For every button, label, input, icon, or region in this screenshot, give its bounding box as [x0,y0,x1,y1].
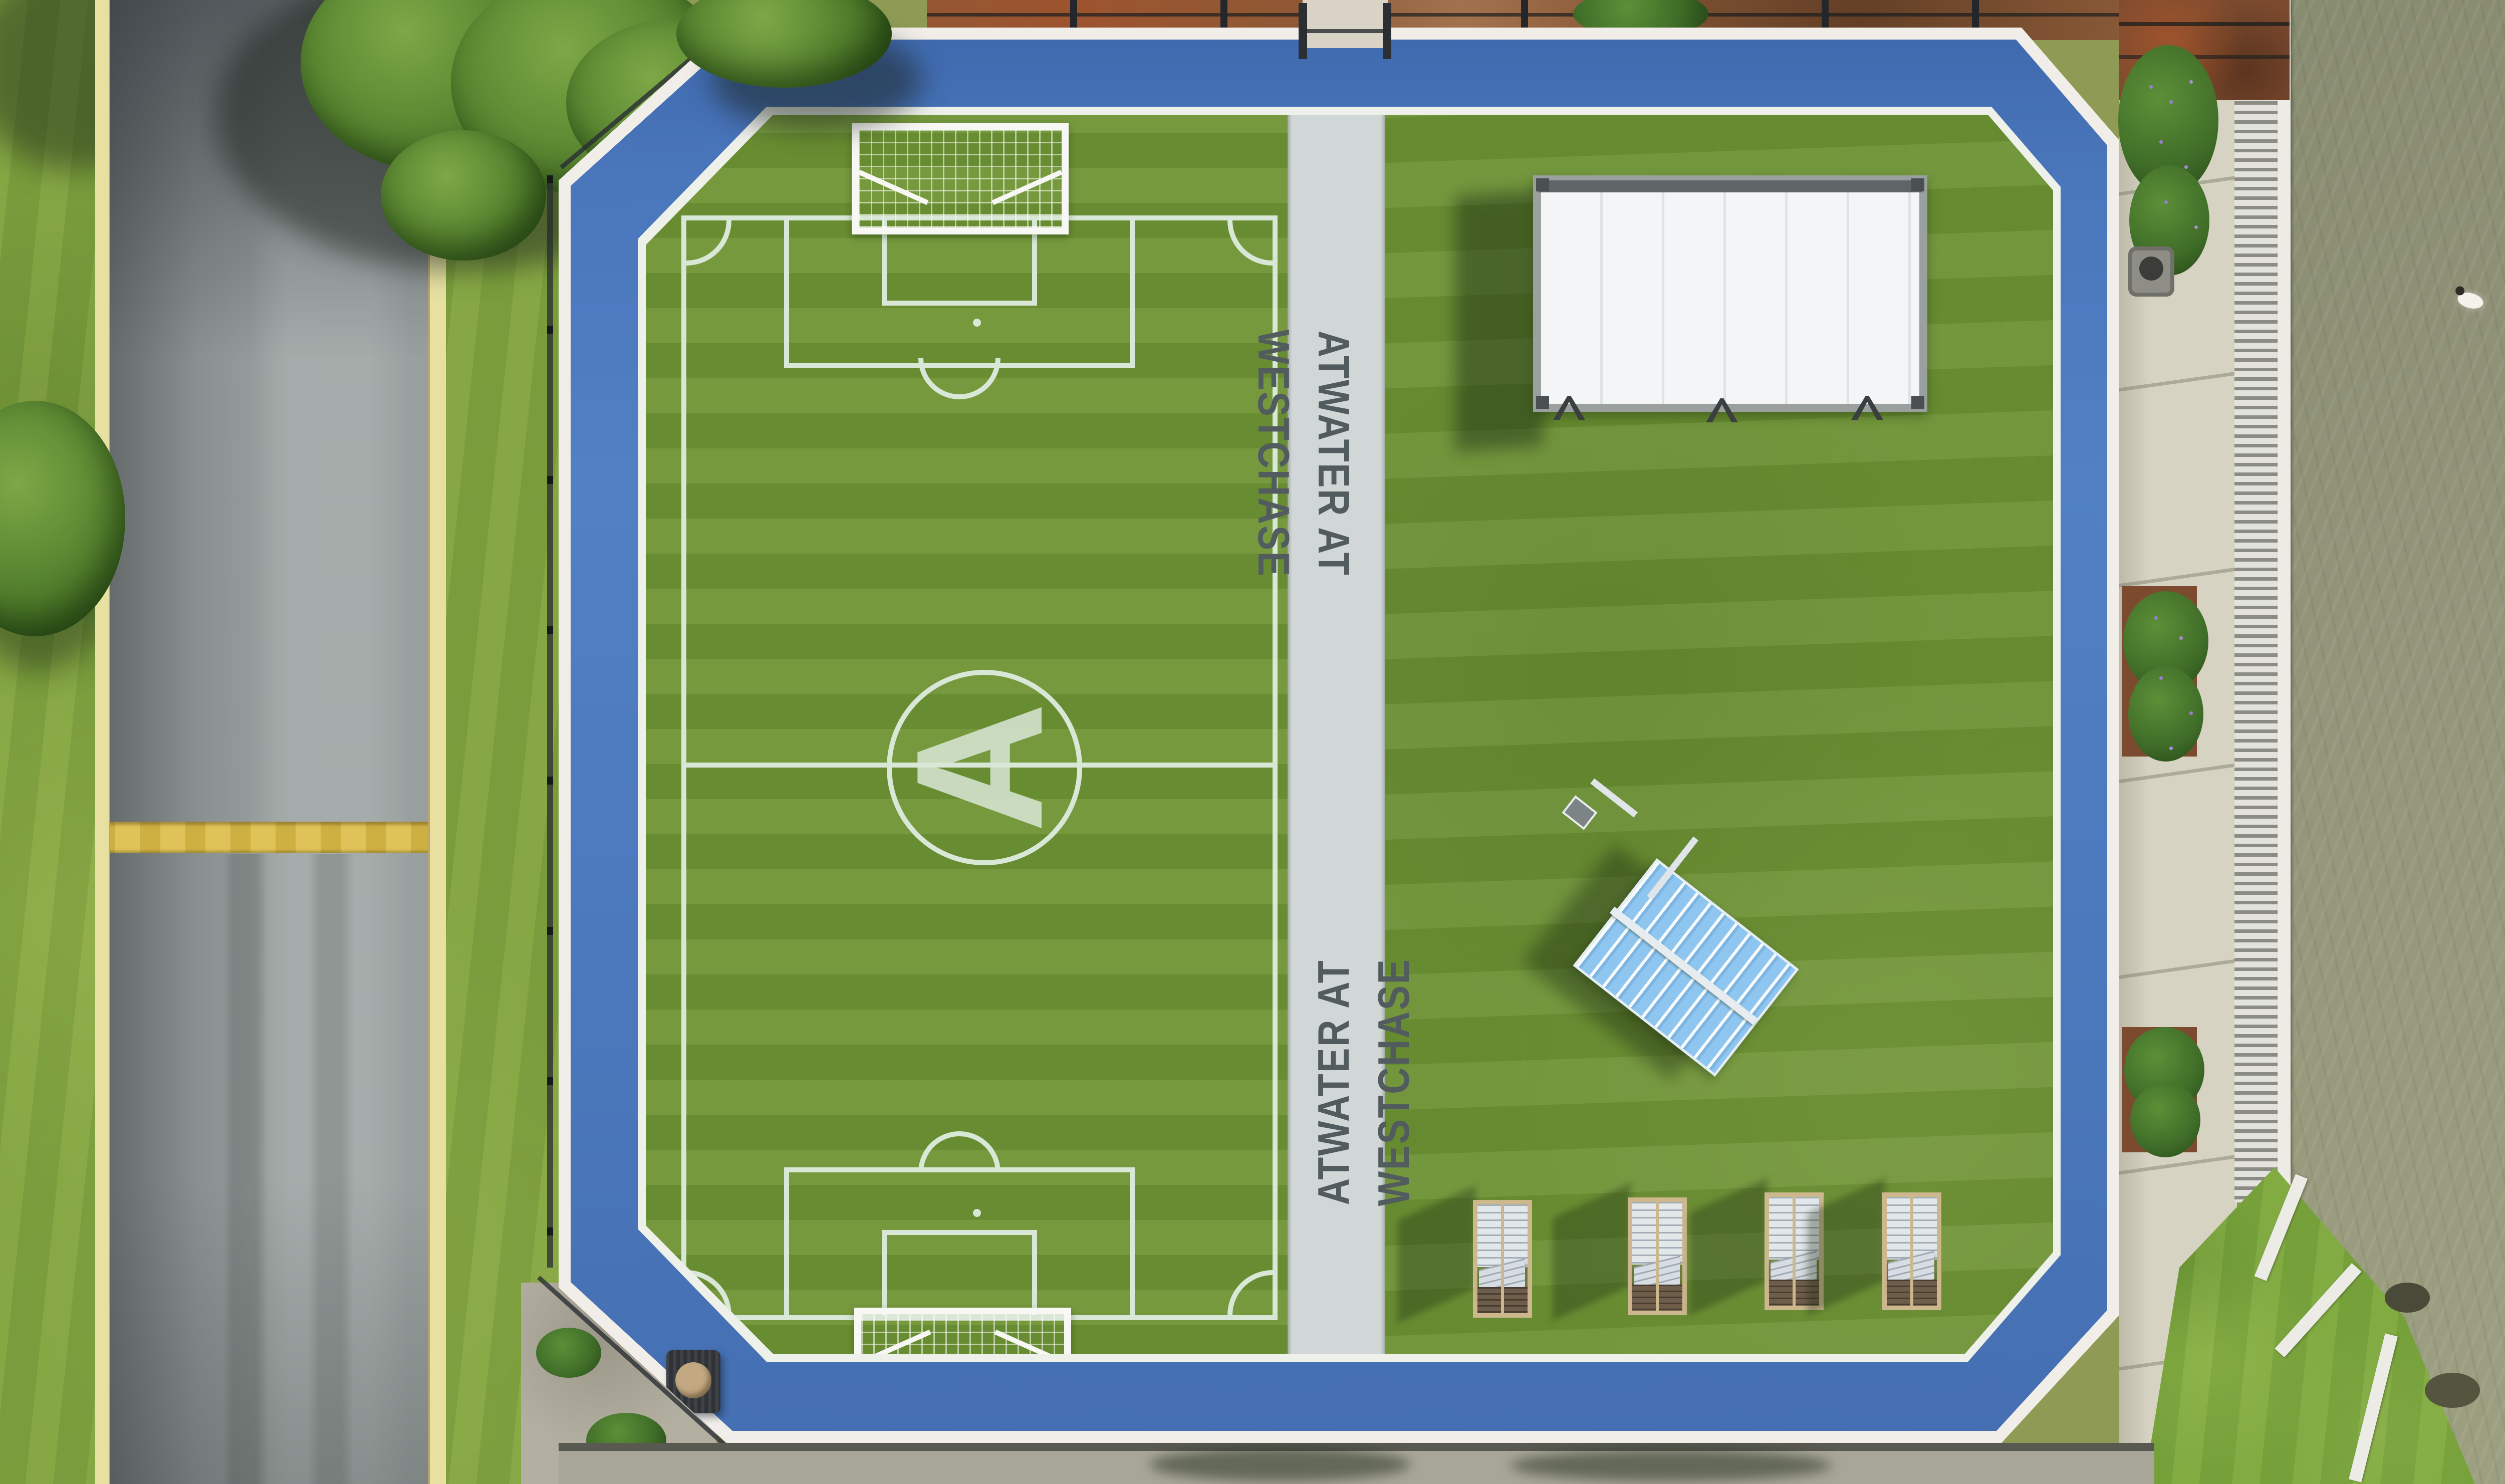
corner-arc [681,215,731,266]
bottom-perimeter-band [559,1443,2154,1484]
penalty-spot [973,319,981,327]
screen-corner [1911,396,1924,409]
corner-arc [1227,215,1278,266]
trash-can-lakeside [2128,246,2174,297]
trash-can-lid [675,1362,711,1398]
chair-center-rail [1793,1197,1796,1306]
chair-center-rail [1910,1197,1913,1306]
screen-top-bar [1538,180,1922,192]
infield-content: A [559,28,2119,1443]
hedge-shadow [1511,1450,1831,1481]
speed-bump [95,822,446,853]
curb-left [95,0,110,1484]
penalty-arc-top [918,358,1000,399]
soccer-field-boundary: A [681,215,1278,1320]
screen-corner [1536,396,1549,409]
lounge-chair [1473,1200,1532,1318]
entry-gate-pad [1303,0,1388,48]
gate-bar [1305,29,1386,33]
tree-canopy [381,130,546,261]
canopy-spine-beam [1610,907,1759,1026]
screen-corner [1911,178,1924,191]
shrub-bottom-left [536,1328,601,1378]
center-logo-letter: A [869,657,1090,878]
aerial-photo-stage: A [0,0,2505,1484]
movie-screen [1533,175,1927,412]
hedge-shadow [1150,1448,1410,1481]
shoreline-rocks [2425,1373,2480,1408]
fence-rail [2119,22,2290,26]
walkway-label-bottom: ATWATER AT WESTCHASE [1304,897,1364,1267]
boardwalk-slats [2234,0,2278,1202]
shoreline-rocks [2385,1283,2430,1313]
chair-center-rail [1501,1204,1504,1313]
flower-dots [2149,85,2153,89]
lounge-chair [1628,1197,1687,1315]
goal-brace [858,170,928,205]
sports-facility: A [559,28,2119,1443]
boardwalk-railing [2278,0,2291,1187]
goal-brace [991,170,1062,205]
penalty-arc-bottom [918,1131,1000,1172]
soccer-goal-top [852,123,1069,234]
goal-box-bottom [882,1230,1037,1320]
walkway-label-top: ATWATER AT WESTCHASE [1304,268,1364,638]
trash-can-opening [2139,257,2163,281]
screen-corner [1536,178,1549,191]
lounge-chair [1882,1192,1941,1310]
fence-shadow-line [559,1443,2154,1451]
penalty-spot [973,1209,981,1217]
shrub-cluster [2130,1082,2200,1157]
road-bottom-shade [110,1177,428,1484]
flower-dots [2154,616,2158,620]
chair-center-rail [1656,1202,1659,1311]
screen-shadow [1455,190,1543,451]
corner-arc [1227,1270,1278,1320]
shrub-cluster [2128,666,2203,762]
fence-left-line [547,175,553,1268]
